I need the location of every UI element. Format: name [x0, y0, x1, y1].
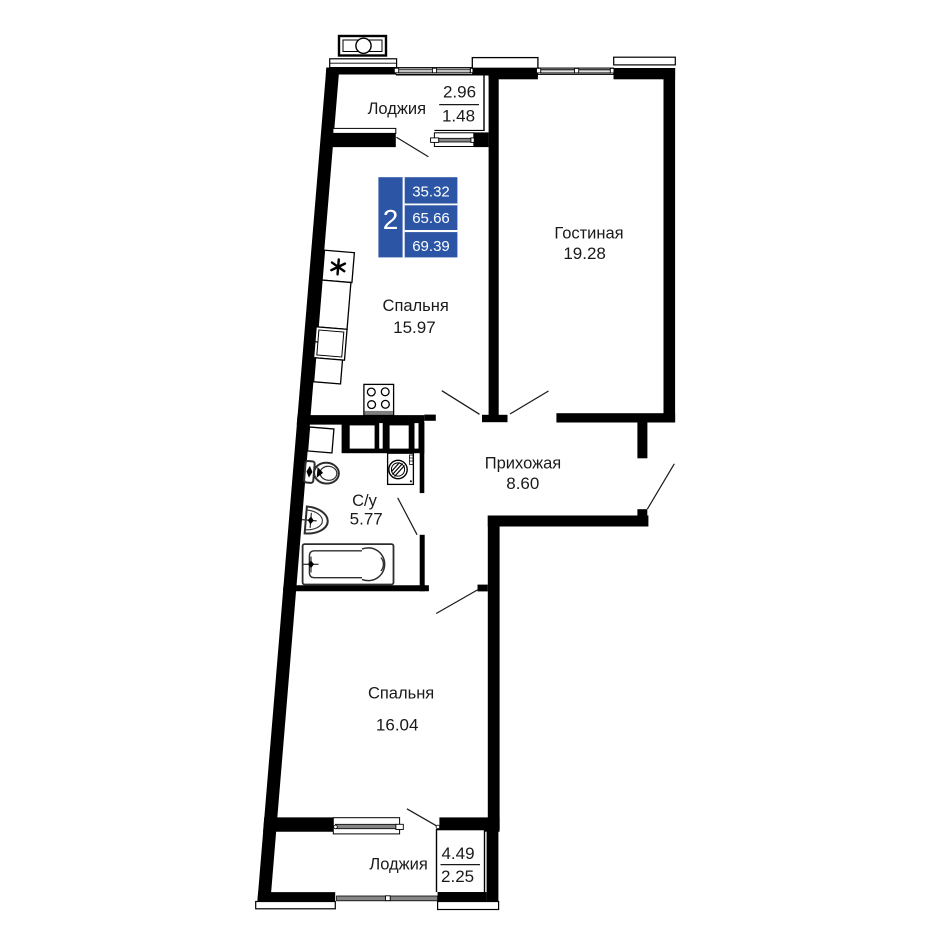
- svg-text:Лоджия: Лоджия: [368, 100, 426, 118]
- svg-text:19.28: 19.28: [563, 244, 606, 263]
- svg-text:5.77: 5.77: [350, 509, 383, 528]
- svg-text:2.96: 2.96: [443, 83, 476, 102]
- svg-text:Лоджия: Лоджия: [369, 856, 427, 874]
- svg-text:15.97: 15.97: [393, 318, 436, 337]
- svg-text:Гостиная: Гостиная: [554, 224, 623, 242]
- svg-text:Прихожая: Прихожая: [485, 454, 561, 472]
- svg-text:16.04: 16.04: [376, 715, 419, 734]
- svg-text:2.25: 2.25: [441, 867, 474, 886]
- svg-text:4.49: 4.49: [441, 844, 474, 863]
- svg-text:2: 2: [383, 204, 399, 235]
- svg-text:8.60: 8.60: [506, 474, 539, 493]
- svg-text:35.32: 35.32: [412, 183, 450, 200]
- svg-text:Спальня: Спальня: [383, 297, 449, 315]
- svg-text:Спальня: Спальня: [368, 685, 434, 703]
- svg-text:69.39: 69.39: [412, 238, 450, 255]
- svg-text:1.48: 1.48: [442, 107, 475, 126]
- svg-text:65.66: 65.66: [412, 210, 450, 227]
- svg-text:С/у: С/у: [352, 492, 378, 510]
